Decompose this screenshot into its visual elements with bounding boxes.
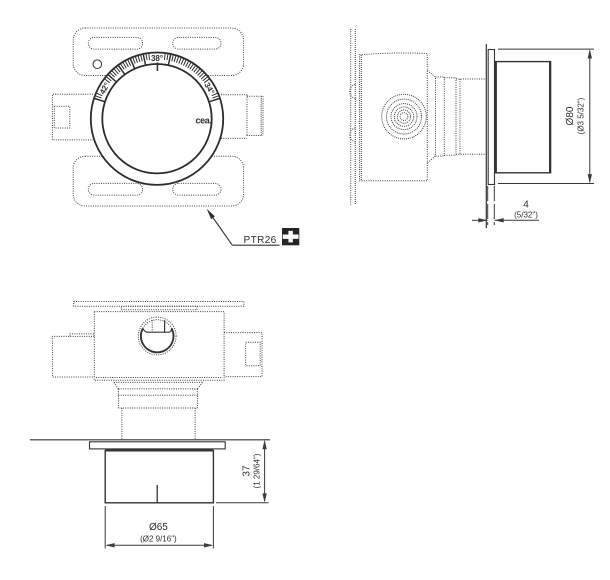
svg-text:cea.: cea. (196, 115, 212, 125)
svg-text:38°: 38° (151, 54, 163, 63)
svg-text:Ø65: Ø65 (149, 522, 168, 533)
svg-text:4: 4 (523, 200, 529, 211)
svg-text:Ø80: Ø80 (565, 106, 576, 125)
svg-text:(1 29/64"): (1 29/64") (253, 453, 262, 488)
svg-text:(Ø3 5/32"): (Ø3 5/32") (577, 97, 586, 134)
svg-text:42°: 42° (98, 81, 112, 96)
svg-text:37: 37 (242, 465, 253, 477)
svg-text:(5/32"): (5/32") (514, 211, 538, 220)
svg-text:(Ø2 9/16"): (Ø2 9/16") (140, 535, 177, 544)
svg-text:34°: 34° (202, 81, 216, 96)
svg-text:PTR26: PTR26 (244, 235, 277, 246)
